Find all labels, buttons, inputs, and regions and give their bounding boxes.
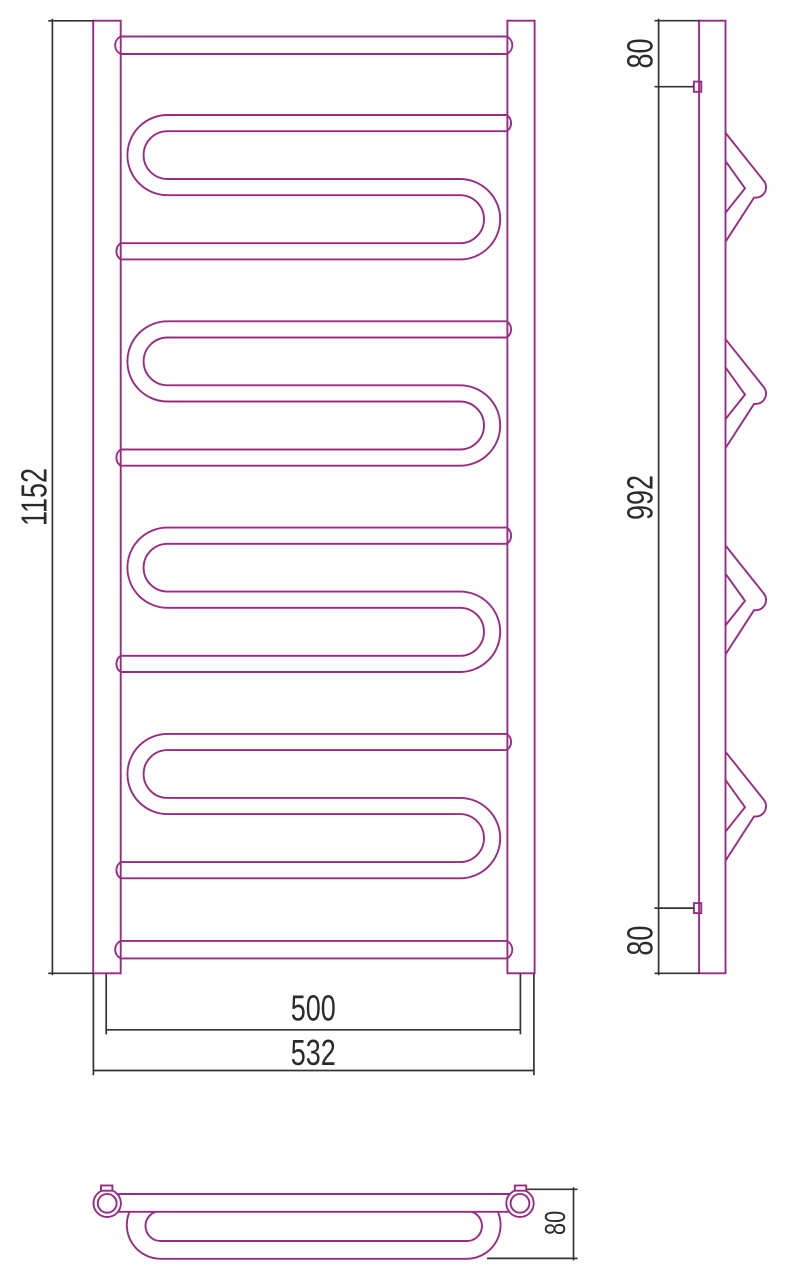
svg-text:80: 80 — [540, 1211, 572, 1235]
svg-text:500: 500 — [291, 988, 336, 1029]
svg-text:80: 80 — [620, 38, 661, 68]
svg-text:80: 80 — [620, 926, 661, 956]
svg-text:532: 532 — [291, 1032, 336, 1073]
svg-text:992: 992 — [620, 475, 661, 520]
svg-text:1152: 1152 — [14, 468, 55, 526]
